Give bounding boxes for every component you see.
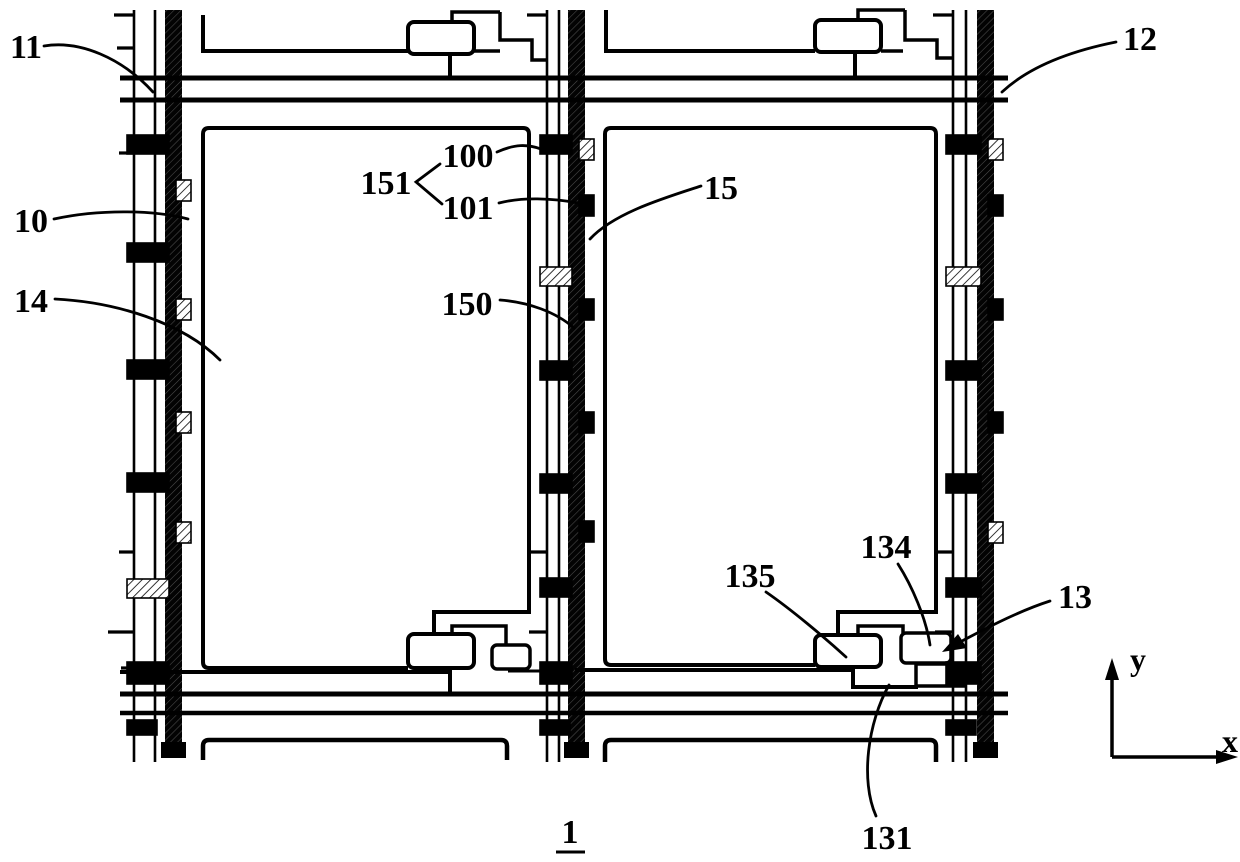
axis-y-label: y bbox=[1130, 641, 1146, 677]
ref-number-150: 150 bbox=[442, 286, 493, 323]
hatched-via-square-left bbox=[176, 299, 191, 320]
ref-number-13: 13 bbox=[1058, 579, 1092, 616]
ref-number-101: 101 bbox=[443, 190, 494, 227]
contact-pad-right bbox=[946, 474, 981, 493]
via-square-right bbox=[988, 412, 1003, 433]
ref-number-11: 11 bbox=[10, 29, 42, 66]
ref-number-10: 10 bbox=[14, 203, 48, 240]
hatched-via-square-left bbox=[176, 180, 191, 201]
contact-pad-left bbox=[127, 360, 169, 379]
hatched-via-square-middle bbox=[579, 139, 594, 160]
data-line-right bbox=[977, 10, 994, 758]
data-line-middle bbox=[568, 10, 585, 758]
ref-number-151: 151 bbox=[361, 165, 412, 202]
hatched-via-square-left bbox=[176, 412, 191, 433]
contact-pad-left bbox=[127, 243, 169, 262]
contact-pad-middle bbox=[540, 578, 572, 597]
contact-pad-middle bbox=[540, 720, 570, 735]
hatched-via-square-right bbox=[988, 139, 1003, 160]
ref-number-131: 131 bbox=[862, 820, 913, 857]
column-end-pad-right bbox=[973, 742, 998, 758]
ref-number-1: 1 bbox=[562, 814, 579, 851]
contact-pad-right bbox=[946, 720, 976, 735]
contact-pad-right bbox=[946, 135, 981, 154]
column-end-pad-middle bbox=[564, 742, 589, 758]
axis-x-label: x bbox=[1222, 723, 1238, 759]
via-square-middle bbox=[579, 412, 594, 433]
contact-pad-left bbox=[127, 135, 169, 154]
contact-pad-left bbox=[127, 473, 169, 492]
hatched-contact-pad-middle bbox=[540, 267, 572, 286]
contact-pad-right bbox=[946, 361, 981, 380]
ref-number-135: 135 bbox=[725, 558, 776, 595]
via-square-middle bbox=[579, 521, 594, 542]
contact-pad-middle bbox=[540, 474, 572, 493]
column-end-pad-left bbox=[161, 742, 186, 758]
contact-pad-middle bbox=[540, 135, 572, 154]
via-square-right bbox=[988, 299, 1003, 320]
ref-number-15: 15 bbox=[704, 170, 738, 207]
via-square-right bbox=[988, 195, 1003, 216]
ref-number-134: 134 bbox=[861, 529, 912, 566]
via-square-middle bbox=[579, 299, 594, 320]
hatched-contact-pad-right bbox=[946, 267, 981, 286]
contact-pad-right bbox=[946, 578, 981, 597]
contact-pad-middle bbox=[540, 361, 572, 380]
hatched-via-square-left bbox=[176, 522, 191, 543]
hatched-contact-pad-left bbox=[127, 579, 169, 598]
via-square-middle bbox=[579, 195, 594, 216]
contact-pad-middle bbox=[540, 662, 572, 684]
data-line-left bbox=[165, 10, 182, 758]
array-substrate-diagram: y x 1112101415110010115150135134131311 bbox=[0, 0, 1240, 862]
contact-pad-left bbox=[127, 720, 157, 735]
ref-number-14: 14 bbox=[14, 283, 48, 320]
patent-figure-page: y x 1112101415110010115150135134131311 bbox=[0, 0, 1240, 862]
hatched-via-square-right bbox=[988, 522, 1003, 543]
ref-number-100: 100 bbox=[443, 138, 494, 175]
ref-number-12: 12 bbox=[1123, 21, 1157, 58]
